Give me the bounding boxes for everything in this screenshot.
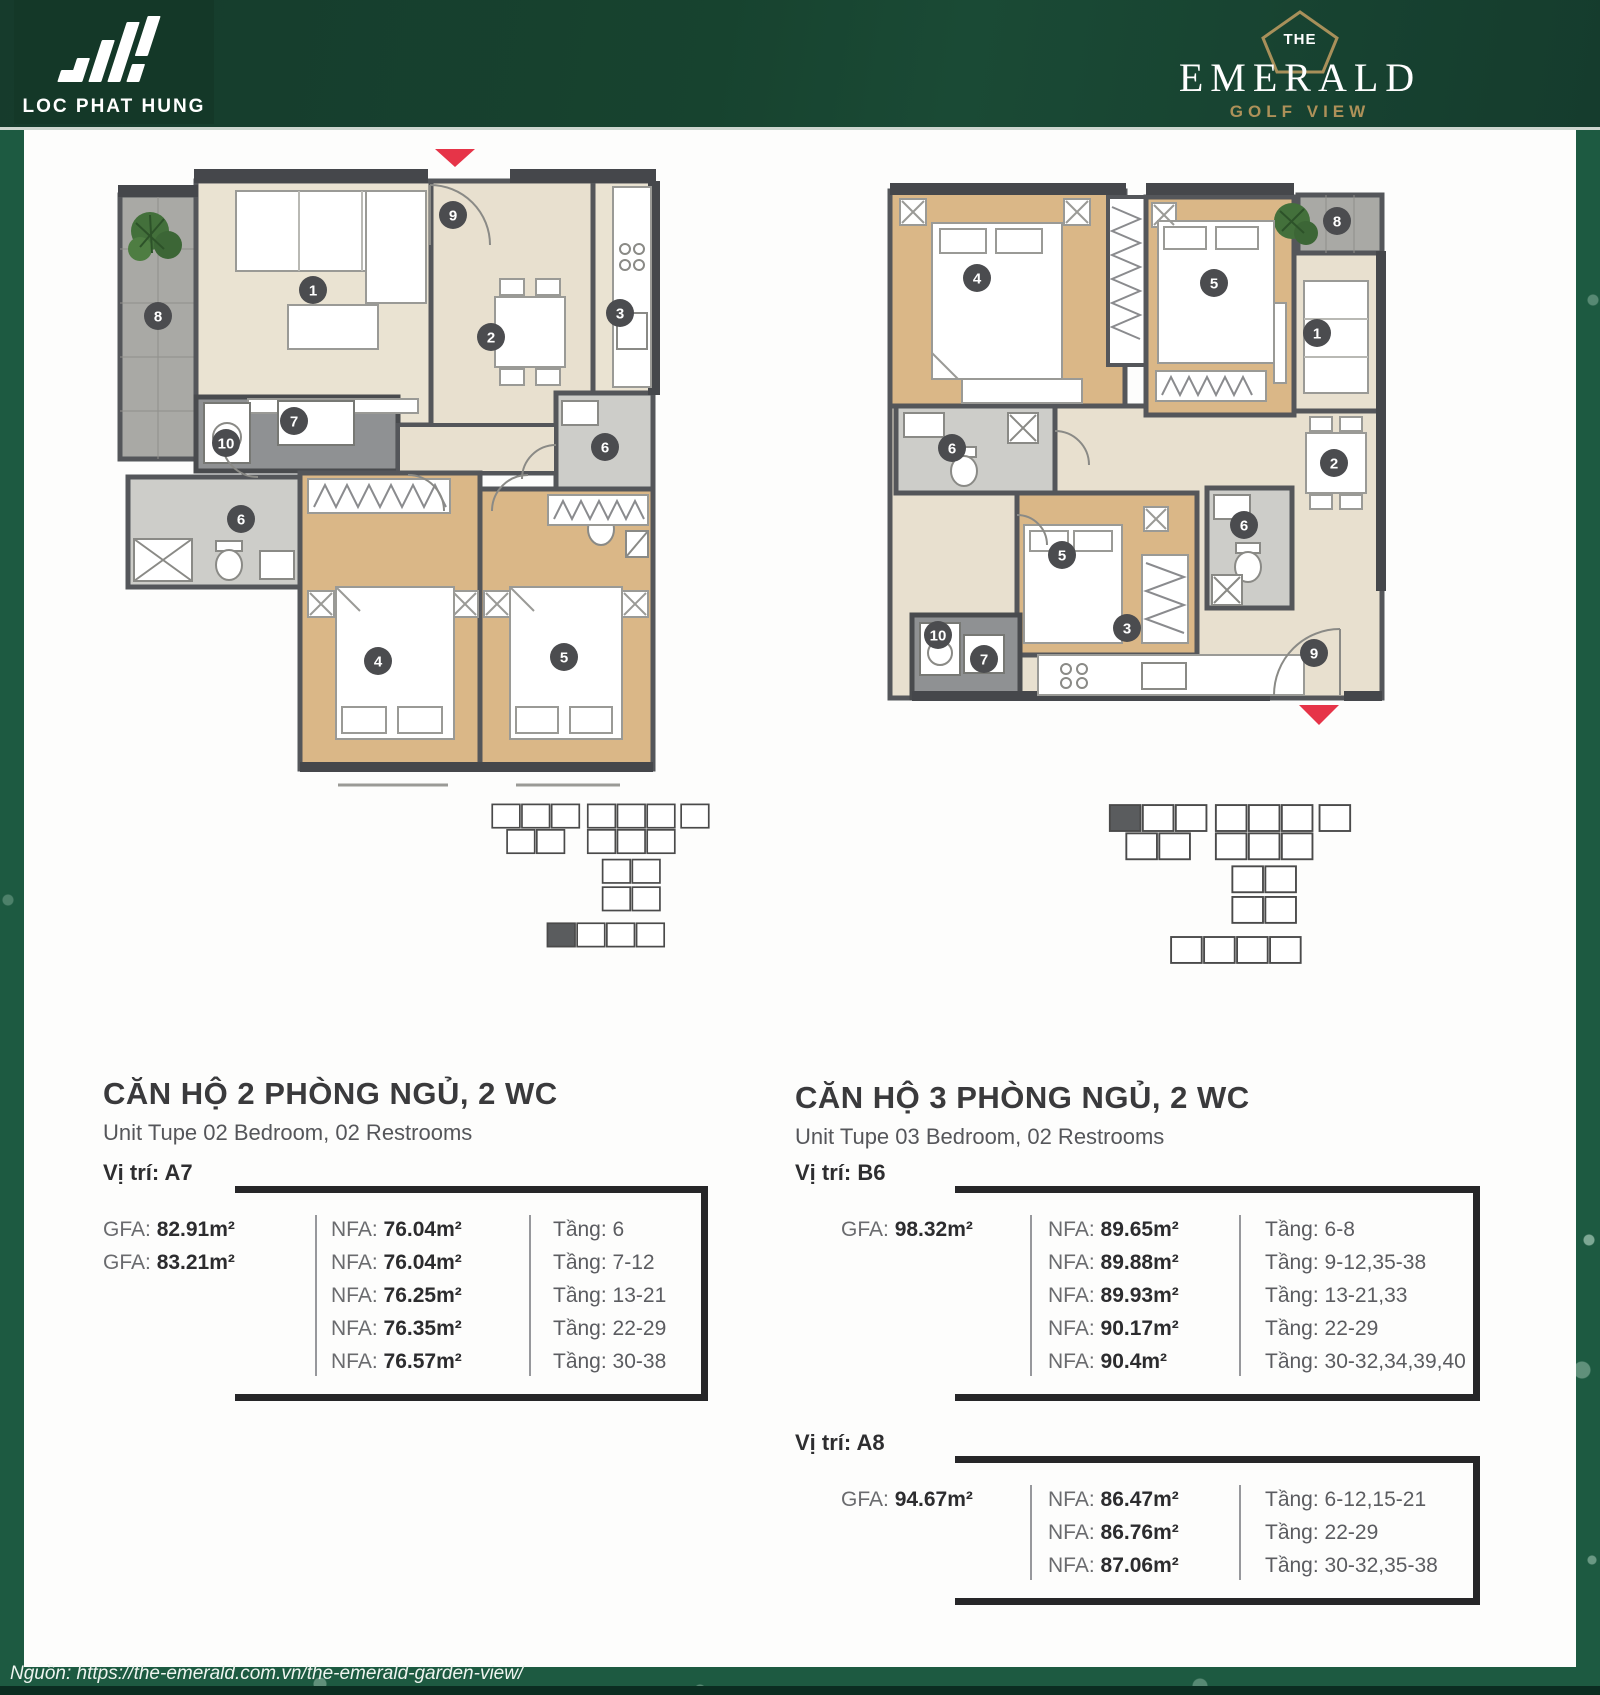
key-plan-unit <box>1216 805 1247 831</box>
key-plan-unit <box>1171 937 1202 963</box>
svg-text:4: 4 <box>973 271 982 288</box>
svg-text:5: 5 <box>1058 548 1066 565</box>
svg-text:2: 2 <box>487 330 495 347</box>
svg-text:1: 1 <box>309 283 317 300</box>
spec-block-a7: Vị trí: A7 GFA: 82.91m²GFA: 83.21m² NFA:… <box>103 1160 723 1401</box>
key-plan-unit <box>1232 866 1263 892</box>
key-plan-unit <box>1249 833 1280 859</box>
key-plan-unit <box>577 923 605 946</box>
key-plan-unit <box>681 804 709 827</box>
brand-left-name: LOC PHAT HUNG <box>23 96 206 118</box>
key-plan-unit <box>1270 937 1301 963</box>
spec-row: NFA: 90.17m² <box>1048 1312 1239 1345</box>
spec-row: NFA: 90.4m² <box>1048 1345 1239 1378</box>
spec-row: NFA: 76.04m² <box>331 1246 529 1279</box>
floor-plan-3br: 4518656231079 <box>812 163 1400 731</box>
spec-row: Tầng: 22-29 <box>1265 1516 1473 1549</box>
key-plan-unit <box>1159 833 1190 859</box>
spec-row: NFA: 89.88m² <box>1048 1246 1239 1279</box>
key-plan-unit <box>617 804 645 827</box>
svg-text:1: 1 <box>1313 326 1321 343</box>
svg-text:9: 9 <box>449 208 457 225</box>
spec-row: Tầng: 13-21,33 <box>1265 1279 1473 1312</box>
key-plan-unit <box>552 804 580 827</box>
room-badge-3: 3 <box>606 299 634 327</box>
key-plan-highlighted-unit <box>1110 805 1141 831</box>
room-badge-7: 7 <box>280 407 308 435</box>
spec-row: GFA: 82.91m² <box>103 1213 315 1246</box>
svg-text:8: 8 <box>154 309 162 326</box>
key-plan-unit <box>1232 897 1263 923</box>
spec-block-a8: Vị trí: A8 GFA: 94.67m² NFA: 86.47m²NFA:… <box>795 1430 1485 1605</box>
svg-text:9: 9 <box>1310 646 1318 663</box>
nfa-column: NFA: 86.47m²NFA: 86.76m²NFA: 87.06m² <box>1032 1483 1239 1582</box>
svg-text:THE: THE <box>1284 31 1317 48</box>
room-badge-5: 5 <box>550 643 578 671</box>
brand-right-tagline: GOLF VIEW <box>1155 102 1445 122</box>
spec-row: NFA: 76.04m² <box>331 1213 529 1246</box>
unit-subtitle: Unit Tupe 02 Bedroom, 02 Restrooms <box>103 1120 558 1146</box>
svg-text:8: 8 <box>1333 214 1341 231</box>
location-label: Vị trí: A7 <box>103 1160 723 1186</box>
room-badge-2: 2 <box>477 323 505 351</box>
key-plan-unit <box>522 804 550 827</box>
spec-block-b6: Vị trí: B6 GFA: 98.32m² NFA: 89.65m²NFA:… <box>795 1160 1485 1401</box>
spec-row: NFA: 89.65m² <box>1048 1213 1239 1246</box>
room-badge-6: 6 <box>591 433 619 461</box>
room-badge-5: 5 <box>1200 269 1228 297</box>
svg-text:2: 2 <box>1330 456 1338 473</box>
spec-row: NFA: 89.93m² <box>1048 1279 1239 1312</box>
svg-text:4: 4 <box>374 654 383 671</box>
key-plan-right <box>1105 798 1355 970</box>
spec-row: NFA: 76.25m² <box>331 1279 529 1312</box>
room-badge-5: 5 <box>1048 541 1076 569</box>
svg-text:10: 10 <box>930 628 947 645</box>
gfa-column: GFA: 94.67m² <box>795 1483 1030 1516</box>
spec-table: GFA: 98.32m² NFA: 89.65m²NFA: 89.88m²NFA… <box>955 1186 1480 1401</box>
emerald-logo: THE EMERALD GOLF VIEW <box>1155 8 1445 120</box>
key-plan-unit <box>1143 805 1174 831</box>
spec-row: Tầng: 30-32,34,39,40 <box>1265 1345 1473 1378</box>
svg-text:3: 3 <box>1123 621 1131 638</box>
spec-row: Tầng: 30-32,35-38 <box>1265 1549 1473 1582</box>
svg-text:6: 6 <box>948 441 956 458</box>
spec-row: GFA: 83.21m² <box>103 1246 315 1279</box>
loc-phat-hung-logo: LOC PHAT HUNG <box>14 0 214 124</box>
key-plan-unit <box>1216 833 1247 859</box>
spec-row: Tầng: 22-29 <box>553 1312 701 1345</box>
key-plan-highlighted-unit <box>547 923 575 946</box>
unit-3br-section: CĂN HỘ 3 PHÒNG NGỦ, 2 WC Unit Tupe 03 Be… <box>795 1080 1250 1150</box>
room-badge-7: 7 <box>970 645 998 673</box>
spec-row: Tầng: 13-21 <box>553 1279 701 1312</box>
bottom-strip <box>0 1686 1600 1695</box>
unit-title: CĂN HỘ 3 PHÒNG NGỦ, 2 WC <box>795 1080 1250 1116</box>
spec-row: NFA: 87.06m² <box>1048 1549 1239 1582</box>
spec-row: Tầng: 22-29 <box>1265 1312 1473 1345</box>
room-badge-1: 1 <box>299 276 327 304</box>
room-badge-9: 9 <box>439 201 467 229</box>
spec-row: Tầng: 7-12 <box>553 1246 701 1279</box>
brand-right-name: EMERALD <box>1155 58 1445 98</box>
header-band: LOC PHAT HUNG THE EMERALD GOLF VIEW <box>0 0 1600 130</box>
spec-row: GFA: 98.32m² <box>841 1213 1030 1246</box>
key-plan-unit <box>507 830 535 853</box>
key-plan-unit <box>492 804 520 827</box>
key-plan-unit <box>632 860 660 883</box>
key-plan-unit <box>647 804 675 827</box>
entrance-marker-icon <box>1299 705 1339 725</box>
brochure-page: { "brand": { "left_name": "LOC PHAT HUNG… <box>0 0 1600 1695</box>
room-badge-10: 10 <box>924 621 952 649</box>
loc-phat-hung-icon <box>44 12 184 96</box>
key-plan-unit <box>1282 805 1313 831</box>
key-plan-unit <box>603 860 631 883</box>
unit-title: CĂN HỘ 2 PHÒNG NGỦ, 2 WC <box>103 1076 558 1112</box>
key-plan-unit <box>607 923 635 946</box>
room-badge-6: 6 <box>1230 511 1258 539</box>
svg-text:6: 6 <box>1240 518 1248 535</box>
key-plan-unit <box>1176 805 1207 831</box>
spec-row: Tầng: 6 <box>553 1213 701 1246</box>
entrance-marker-icon <box>435 149 475 167</box>
svg-text:6: 6 <box>237 512 245 529</box>
gfa-column: GFA: 82.91m²GFA: 83.21m² <box>103 1213 315 1279</box>
unit-2br-section: CĂN HỘ 2 PHÒNG NGỦ, 2 WC Unit Tupe 02 Be… <box>103 1076 558 1146</box>
room-badge-8: 8 <box>144 302 172 330</box>
key-plan-unit <box>537 830 565 853</box>
nfa-column: NFA: 89.65m²NFA: 89.88m²NFA: 89.93m²NFA:… <box>1032 1213 1239 1378</box>
svg-text:5: 5 <box>560 650 568 667</box>
spec-table: GFA: 94.67m² NFA: 86.47m²NFA: 86.76m²NFA… <box>955 1456 1480 1605</box>
room-badge-4: 4 <box>364 647 392 675</box>
floor-column: Tầng: 6-12,15-21Tầng: 22-29Tầng: 30-32,3… <box>1241 1483 1473 1582</box>
spec-row: NFA: 76.35m² <box>331 1312 529 1345</box>
floor-plan-2br: 123987106645 <box>108 145 666 793</box>
spec-table: GFA: 82.91m²GFA: 83.21m² NFA: 76.04m²NFA… <box>235 1186 708 1401</box>
key-plan-left <box>488 798 713 953</box>
room-badge-2: 2 <box>1320 449 1348 477</box>
key-plan-unit <box>588 830 616 853</box>
key-plan-unit <box>1265 866 1296 892</box>
room-badge-9: 9 <box>1300 639 1328 667</box>
source-url: Nguồn: https://the-emerald.com.vn/the-em… <box>10 1663 523 1685</box>
spec-row: NFA: 86.47m² <box>1048 1483 1239 1516</box>
spec-row: NFA: 76.57m² <box>331 1345 529 1378</box>
svg-text:7: 7 <box>980 652 988 669</box>
unit-subtitle: Unit Tupe 03 Bedroom, 02 Restrooms <box>795 1124 1250 1150</box>
svg-text:5: 5 <box>1210 276 1218 293</box>
key-plan-unit <box>632 887 660 910</box>
svg-text:3: 3 <box>616 306 624 323</box>
spec-row: Tầng: 30-38 <box>553 1345 701 1378</box>
key-plan-unit <box>1204 937 1235 963</box>
wardrobe <box>1108 197 1146 365</box>
gfa-column: GFA: 98.32m² <box>795 1213 1030 1246</box>
svg-text:7: 7 <box>290 414 298 431</box>
corridor <box>398 425 556 473</box>
room-badge-3: 3 <box>1113 614 1141 642</box>
spec-row: Tầng: 9-12,35-38 <box>1265 1246 1473 1279</box>
svg-text:6: 6 <box>601 440 609 457</box>
key-plan-unit <box>637 923 665 946</box>
room-badge-8: 8 <box>1323 207 1351 235</box>
spec-row: Tầng: 6-8 <box>1265 1213 1473 1246</box>
key-plan-unit <box>1265 897 1296 923</box>
svg-text:10: 10 <box>218 436 235 453</box>
location-label: Vị trí: B6 <box>795 1160 1485 1186</box>
key-plan-unit <box>1320 805 1351 831</box>
key-plan-unit <box>647 830 675 853</box>
key-plan-unit <box>588 804 616 827</box>
key-plan-unit <box>1249 805 1280 831</box>
floor-column: Tầng: 6Tầng: 7-12Tầng: 13-21Tầng: 22-29T… <box>531 1213 701 1378</box>
key-plan-unit <box>1237 937 1268 963</box>
key-plan-unit <box>603 887 631 910</box>
nfa-column: NFA: 76.04m²NFA: 76.04m²NFA: 76.25m²NFA:… <box>317 1213 529 1378</box>
room-badge-4: 4 <box>963 264 991 292</box>
key-plan-unit <box>1126 833 1157 859</box>
location-label: Vị trí: A8 <box>795 1430 1485 1456</box>
room-badge-10: 10 <box>212 429 240 457</box>
room-badge-6: 6 <box>227 505 255 533</box>
spec-row: NFA: 86.76m² <box>1048 1516 1239 1549</box>
key-plan-unit <box>1282 833 1313 859</box>
floor-column: Tầng: 6-8Tầng: 9-12,35-38Tầng: 13-21,33T… <box>1241 1213 1473 1378</box>
spec-row: Tầng: 6-12,15-21 <box>1265 1483 1473 1516</box>
room-badge-1: 1 <box>1303 319 1331 347</box>
room-badge-6: 6 <box>938 434 966 462</box>
key-plan-unit <box>617 830 645 853</box>
spec-row: GFA: 94.67m² <box>841 1483 1030 1516</box>
